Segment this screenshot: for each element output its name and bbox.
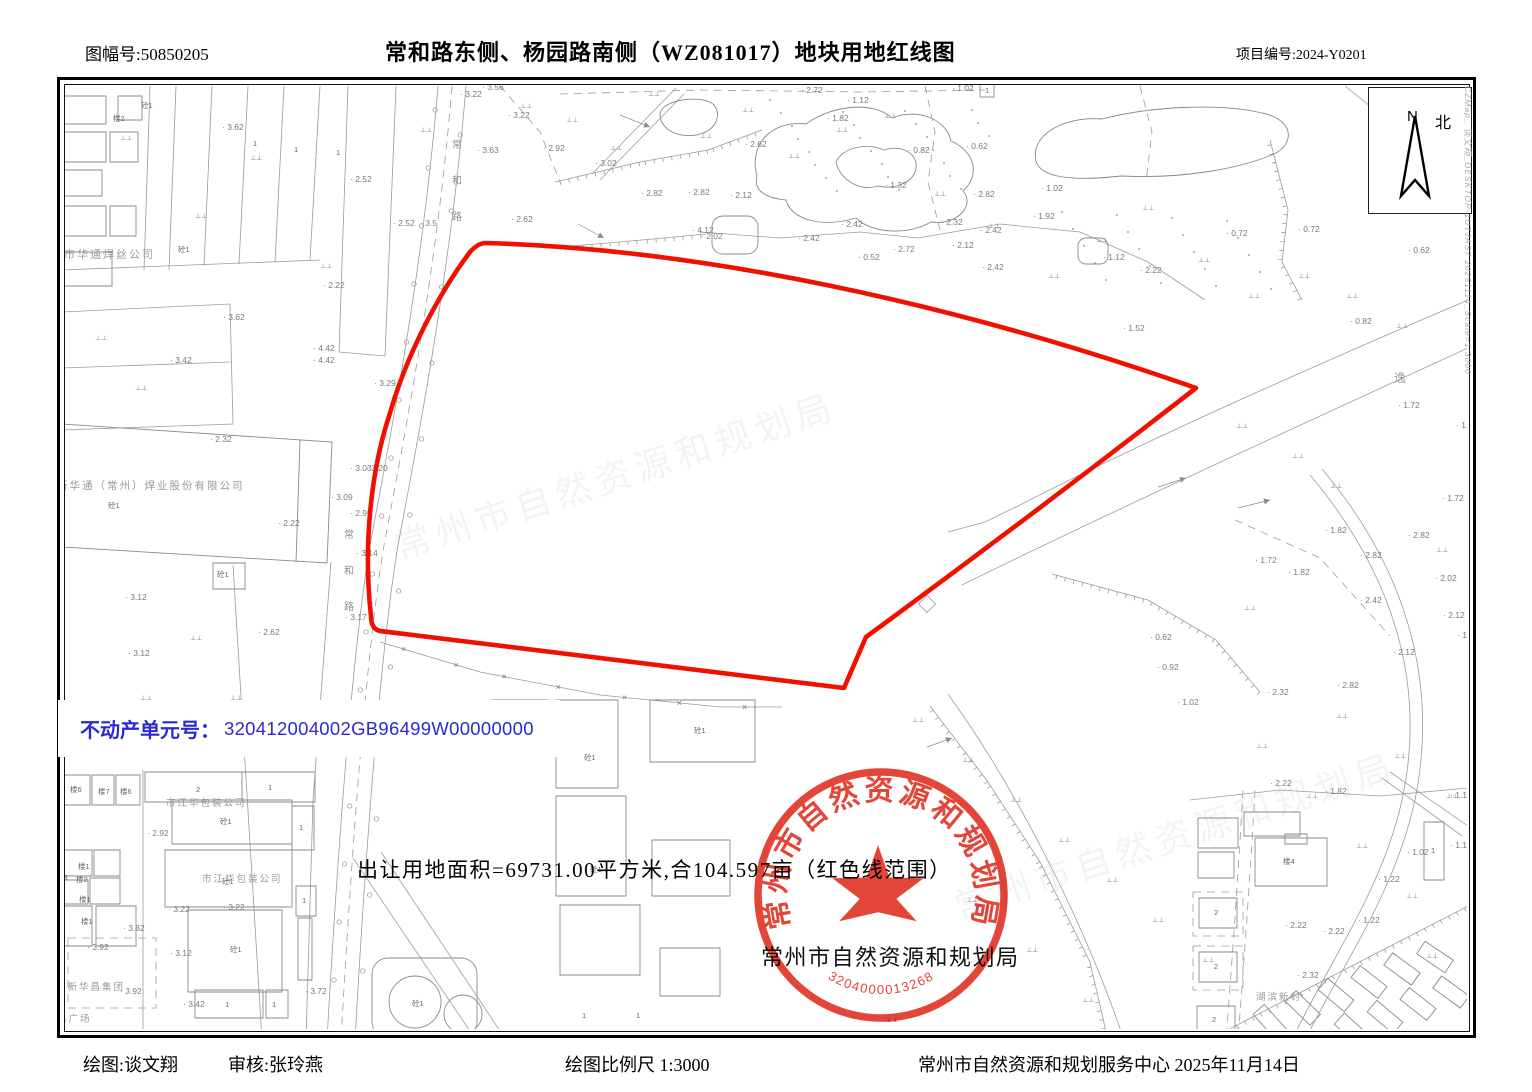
svg-text:⊥⊥: ⊥⊥	[1142, 205, 1154, 212]
svg-text:· 3.42: · 3.42	[170, 355, 192, 365]
svg-text:⊥⊥: ⊥⊥	[1152, 917, 1164, 924]
unit-number-value: 320412004002GB96499W00000000	[224, 718, 534, 740]
svg-text:⊥⊥: ⊥⊥	[190, 635, 202, 642]
svg-text:楼3: 楼3	[56, 872, 68, 882]
svg-text:· 2.82: · 2.82	[688, 187, 710, 197]
svg-text:· 2.62: · 2.62	[511, 214, 533, 224]
svg-text:常和路: 常和路	[344, 528, 354, 613]
svg-text:⊥⊥: ⊥⊥	[1356, 843, 1368, 850]
mid-parcel	[62, 304, 233, 430]
svg-text:⊥⊥: ⊥⊥	[250, 155, 262, 162]
svg-text:市华通焊丝公司: 市华通焊丝公司	[64, 247, 155, 261]
svg-text:· 2.62: · 2.62	[258, 627, 280, 637]
footer-drafter: 绘图:谈文翔	[83, 1051, 178, 1077]
svg-text:· 2.22: · 2.22	[1323, 926, 1345, 936]
svg-text:⊥⊥: ⊥⊥	[1236, 423, 1248, 430]
svg-text:· 1.52: · 1.52	[1123, 323, 1145, 333]
svg-text:· 1.32: · 1.32	[885, 180, 907, 190]
svg-text:1: 1	[225, 1000, 229, 1009]
svg-text:· 2.12: · 2.12	[730, 190, 752, 200]
svg-text:⊥⊥: ⊥⊥	[420, 127, 432, 134]
svg-text:市江华包装公司: 市江华包装公司	[202, 873, 283, 885]
svg-text:· 0.62: · 0.62	[1408, 245, 1430, 255]
svg-text:· 2.32: · 2.32	[1267, 687, 1289, 697]
svg-text:· 2.12: · 2.12	[1393, 647, 1415, 657]
svg-text:· 2.12: · 2.12	[952, 240, 974, 250]
svg-text:2: 2	[1214, 962, 1218, 971]
svg-text:· 1.82: · 1.82	[1325, 786, 1347, 796]
svg-text:· 2.62: · 2.62	[745, 139, 767, 149]
svg-text:×: ×	[622, 692, 627, 702]
svg-text:1: 1	[582, 1011, 586, 1020]
svg-text:×: ×	[556, 682, 561, 692]
svg-text:· 3.92: · 3.92	[87, 942, 109, 952]
svg-text:砼1: 砼1	[220, 816, 232, 826]
svg-text:砼1: 砼1	[584, 752, 596, 762]
svg-text:楼2: 楼2	[76, 874, 88, 884]
svg-text:· 2.42: · 2.42	[798, 233, 820, 243]
svg-text:· 2.72: · 2.72	[893, 244, 915, 254]
unit-number-label: 不动产单元号：	[80, 714, 220, 743]
svg-text:· 2.82: · 2.82	[641, 188, 663, 198]
svg-text:苏新华昌集团: 苏新华昌集团	[56, 981, 125, 993]
svg-text:· 2.72: · 2.72	[801, 85, 823, 95]
svg-text:砼1: 砼1	[141, 100, 153, 110]
svg-text:砼1: 砼1	[230, 944, 242, 954]
svg-text:⊥⊥: ⊥⊥	[1244, 605, 1256, 612]
seal-star	[832, 845, 923, 921]
svg-text:⊥⊥: ⊥⊥	[1256, 743, 1268, 750]
svg-text:· 2.82: · 2.82	[1408, 530, 1430, 540]
real-estate-unit-box: 不动产单元号： 320412004002GB96499W00000000	[58, 700, 560, 757]
svg-text:· 3.17: · 3.17	[345, 612, 367, 622]
svg-text:砼1: 砼1	[217, 569, 229, 579]
svg-text:2: 2	[196, 785, 200, 794]
svg-text:· 3.29: · 3.29	[374, 378, 396, 388]
svg-text:· 2.02: · 2.02	[1435, 573, 1457, 583]
svg-text:· 0.82: · 0.82	[1350, 316, 1372, 326]
north-arrow-box: N 北	[1368, 87, 1472, 214]
svg-text:· 2.92: · 2.92	[147, 828, 169, 838]
svg-text:· 1.22: · 1.22	[1358, 915, 1380, 925]
map-watermark: 常州市自然资源和规划局	[390, 387, 842, 568]
svg-text:· 0.82: · 0.82	[908, 145, 930, 155]
svg-text:⊥⊥: ⊥⊥	[1248, 293, 1260, 300]
svg-text:· 3.12: · 3.12	[125, 592, 147, 602]
svg-text:· 1.42: · 1.42	[1457, 630, 1479, 640]
svg-text:· 2.32: · 2.32	[941, 217, 963, 227]
svg-text:· 3.63: · 3.63	[477, 145, 499, 155]
svg-text:1: 1	[302, 896, 306, 905]
svg-text:· 0.52: · 0.52	[858, 252, 880, 262]
svg-text:⊥⊥: ⊥⊥	[1082, 997, 1094, 1004]
svg-text:· 2.82: · 2.82	[1337, 680, 1359, 690]
svg-text:⊥⊥: ⊥⊥	[1048, 273, 1060, 280]
svg-text:新华通（常州）焊业股份有限公司: 新华通（常州）焊业股份有限公司	[57, 479, 245, 492]
svg-text:· 3.82: · 3.82	[123, 923, 145, 933]
field-boundary	[700, 86, 1468, 836]
svg-text:1: 1	[985, 86, 989, 95]
svg-text:· 1.82: · 1.82	[827, 113, 849, 123]
svg-text:· 3.22: · 3.22	[223, 902, 245, 912]
pond-small	[660, 99, 718, 135]
seal-serial: 3204000013268	[826, 968, 937, 997]
svg-text:· 3.22: · 3.22	[168, 904, 190, 914]
svg-text:· 0.62: · 0.62	[1150, 632, 1172, 642]
svg-text:2: 2	[1212, 1015, 1216, 1024]
svg-text:· 0.72: · 0.72	[1226, 228, 1248, 238]
svg-text:1: 1	[272, 1000, 276, 1009]
svg-text:⊥⊥: ⊥⊥	[1202, 957, 1214, 964]
svg-text:×: ×	[454, 660, 459, 670]
svg-text:· 2.82: · 2.82	[973, 189, 995, 199]
svg-text:⊥⊥: ⊥⊥	[195, 213, 207, 220]
svg-text:· 0.62: · 0.62	[966, 141, 988, 151]
pond-long	[1035, 107, 1288, 178]
footer-agency-date: 常州市自然资源和规划服务中心 2025年11月14日	[918, 1051, 1300, 1077]
svg-text:楼1: 楼1	[81, 916, 93, 926]
svg-text:⊥⊥: ⊥⊥	[912, 717, 924, 724]
svg-text:楼6: 楼6	[120, 786, 132, 796]
svg-text:· 2.42: · 2.42	[982, 262, 1004, 272]
svg-text:· 1.72: · 1.72	[1255, 555, 1277, 565]
factory-building	[62, 424, 332, 589]
svg-text:1: 1	[636, 1011, 640, 1020]
svg-text:砼1: 砼1	[694, 725, 706, 735]
svg-text:· 2.02: · 2.02	[701, 231, 723, 241]
svg-text:⊥⊥: ⊥⊥	[135, 385, 147, 392]
svg-text:砼1: 砼1	[178, 244, 190, 254]
svg-text:· 1.02: · 1.02	[1407, 847, 1429, 857]
svg-text:· 1.02: · 1.02	[1177, 697, 1199, 707]
svg-text:⊥⊥: ⊥⊥	[742, 107, 754, 114]
svg-text:⊥⊥: ⊥⊥	[1436, 547, 1448, 554]
svg-text:楼4: 楼4	[1283, 856, 1295, 866]
svg-text:· 2.42: · 2.42	[980, 225, 1002, 235]
svg-text:· 3.5: · 3.5	[420, 218, 437, 228]
svg-text:砼1: 砼1	[412, 998, 424, 1008]
svg-text:砼1: 砼1	[108, 500, 120, 510]
svg-text:· 1.86: · 1.86	[1456, 420, 1478, 430]
svg-text:楼6: 楼6	[70, 784, 82, 794]
footer-checker: 审核:张玲燕	[228, 1051, 323, 1077]
road-edge-left	[327, 86, 438, 1040]
svg-text:· 3.56: · 3.56	[482, 82, 504, 92]
svg-text:· 1.72: · 1.72	[1442, 493, 1464, 503]
svg-text:×: ×	[742, 702, 747, 712]
svg-text:· 4.42: · 4.42	[313, 343, 335, 353]
svg-text:· 2.22: · 2.22	[1140, 265, 1162, 275]
svg-text:⊥⊥: ⊥⊥	[1198, 257, 1210, 264]
svg-text:楼7: 楼7	[98, 786, 110, 796]
pond-middle	[755, 107, 973, 231]
svg-text:1: 1	[299, 823, 303, 832]
svg-text:· 3.12: · 3.12	[170, 948, 192, 958]
river-bank-lower	[962, 348, 1468, 585]
official-seal: 常州市自然资源和规划局 3204000013268	[740, 752, 1030, 1042]
svg-text:· 0.72: · 0.72	[1298, 224, 1320, 234]
svg-text:⊥⊥: ⊥⊥	[1466, 605, 1478, 612]
svg-text:市江华包装公司: 市江华包装公司	[166, 797, 247, 809]
svg-text:· 2.22: · 2.22	[1285, 920, 1307, 930]
svg-text:楼1: 楼1	[79, 894, 91, 904]
svg-text:· 3.22: · 3.22	[508, 110, 530, 120]
svg-text:×: ×	[502, 672, 507, 682]
svg-text:· 2.22: · 2.22	[323, 280, 345, 290]
map-sheet: 图幅号:50850205 常和路东侧、杨园路南侧（WZ081017）地块用地红线…	[0, 0, 1532, 1092]
svg-text:⊥⊥: ⊥⊥	[1394, 753, 1406, 760]
svg-text:⊥⊥: ⊥⊥	[788, 153, 800, 160]
svg-text:· 3.62: · 3.62	[223, 312, 245, 322]
svg-text:⊥⊥: ⊥⊥	[1336, 713, 1348, 720]
svg-text:⊥⊥: ⊥⊥	[1292, 453, 1304, 460]
svg-text:楼1: 楼1	[78, 861, 90, 871]
svg-text:×: ×	[401, 644, 406, 654]
svg-text:· 1.72: · 1.72	[1398, 400, 1420, 410]
svg-text:×: ×	[677, 698, 682, 708]
svg-text:· 4.42: · 4.42	[313, 355, 335, 365]
svg-text:· 1.12: · 1.12	[1450, 840, 1472, 850]
svg-text:⊥⊥: ⊥⊥	[95, 335, 107, 342]
svg-text:⊥⊥: ⊥⊥	[1298, 273, 1310, 280]
svg-text:1: 1	[336, 148, 340, 157]
svg-text:⊥⊥: ⊥⊥	[1406, 893, 1418, 900]
svg-text:⊥⊥: ⊥⊥	[320, 263, 332, 270]
svg-text:· 1.22: · 1.22	[1378, 874, 1400, 884]
svg-text:· 0.92: · 0.92	[1157, 662, 1179, 672]
footer-scale: 绘图比例尺 1:3000	[565, 1051, 710, 1077]
north-arrow-icon	[1369, 88, 1473, 215]
svg-text:⊥⊥: ⊥⊥	[836, 127, 848, 134]
svg-text:⊥⊥: ⊥⊥	[120, 135, 132, 142]
svg-text:⊥⊥: ⊥⊥	[520, 103, 532, 110]
svg-text:· 1.02: · 1.02	[952, 83, 974, 93]
road-centerline	[341, 86, 452, 1040]
svg-text:· 2.52: · 2.52	[350, 174, 372, 184]
buildings-bottom-right	[1197, 812, 1444, 1034]
svg-text:· 1.82: · 1.82	[1288, 567, 1310, 577]
svg-text:· 3.22: · 3.22	[460, 89, 482, 99]
svg-text:· 3.72: · 3.72	[305, 986, 327, 996]
svg-text:1: 1	[253, 139, 257, 148]
svg-text:· 2.92: · 2.92	[543, 143, 565, 153]
svg-text:· 2.42: · 2.42	[841, 219, 863, 229]
svg-text:· 3.09: · 3.09	[331, 492, 353, 502]
parcel-redline	[368, 243, 1196, 688]
side-plot-note: CZMap_ 谈文翔_DESKTOP-1UTJAS7 20251114_Scal…	[1462, 86, 1474, 375]
svg-text:· 3.02: · 3.02	[595, 158, 617, 168]
svg-text:1: 1	[1431, 846, 1435, 855]
svg-text:· 3.42: · 3.42	[183, 999, 205, 1009]
svg-text:昌广场: 昌广场	[57, 1013, 92, 1025]
svg-text:· 2.22: · 2.22	[278, 518, 300, 528]
svg-text:· 2.42: · 2.42	[1360, 595, 1382, 605]
svg-text:· 1.02: · 1.02	[1041, 183, 1063, 193]
svg-text:· 3.62: · 3.62	[222, 122, 244, 132]
svg-text:· 2.52: · 2.52	[393, 218, 415, 228]
svg-text:· 2.12: · 2.12	[1443, 610, 1465, 620]
svg-text:· 3.12: · 3.12	[128, 648, 150, 658]
svg-text:⊥⊥: ⊥⊥	[1058, 837, 1070, 844]
svg-text:湖滨新村: 湖滨新村	[1256, 991, 1302, 1003]
svg-text:· 1.12: · 1.12	[1103, 252, 1125, 262]
svg-text:· 1.12: · 1.12	[847, 95, 869, 105]
svg-text:· 2.22: · 2.22	[1270, 778, 1292, 788]
svg-text:⊥⊥: ⊥⊥	[1426, 953, 1438, 960]
svg-text:· 2.82: · 2.82	[1360, 550, 1382, 560]
svg-text:· 2.32: · 2.32	[210, 434, 232, 444]
svg-text:· 1.92: · 1.92	[1033, 211, 1055, 221]
svg-text:⊥⊥: ⊥⊥	[648, 91, 660, 98]
svg-text:⊥⊥: ⊥⊥	[934, 191, 946, 198]
svg-text:3204000013268: 3204000013268	[826, 968, 937, 997]
svg-text:⊥⊥: ⊥⊥	[1346, 293, 1358, 300]
svg-text:2: 2	[1214, 908, 1218, 917]
svg-text:1: 1	[294, 145, 298, 154]
svg-text:1: 1	[268, 783, 272, 792]
svg-text:· 1.82: · 1.82	[1325, 525, 1347, 535]
svg-text:⊥⊥: ⊥⊥	[610, 145, 622, 152]
svg-text:· 1.12: · 1.12	[1450, 790, 1472, 800]
svg-text:· 2.32: · 2.32	[1297, 970, 1319, 980]
svg-text:逸: 逸	[1394, 371, 1408, 385]
svg-text:⊥⊥: ⊥⊥	[566, 117, 578, 124]
svg-text:楼2: 楼2	[113, 113, 125, 123]
